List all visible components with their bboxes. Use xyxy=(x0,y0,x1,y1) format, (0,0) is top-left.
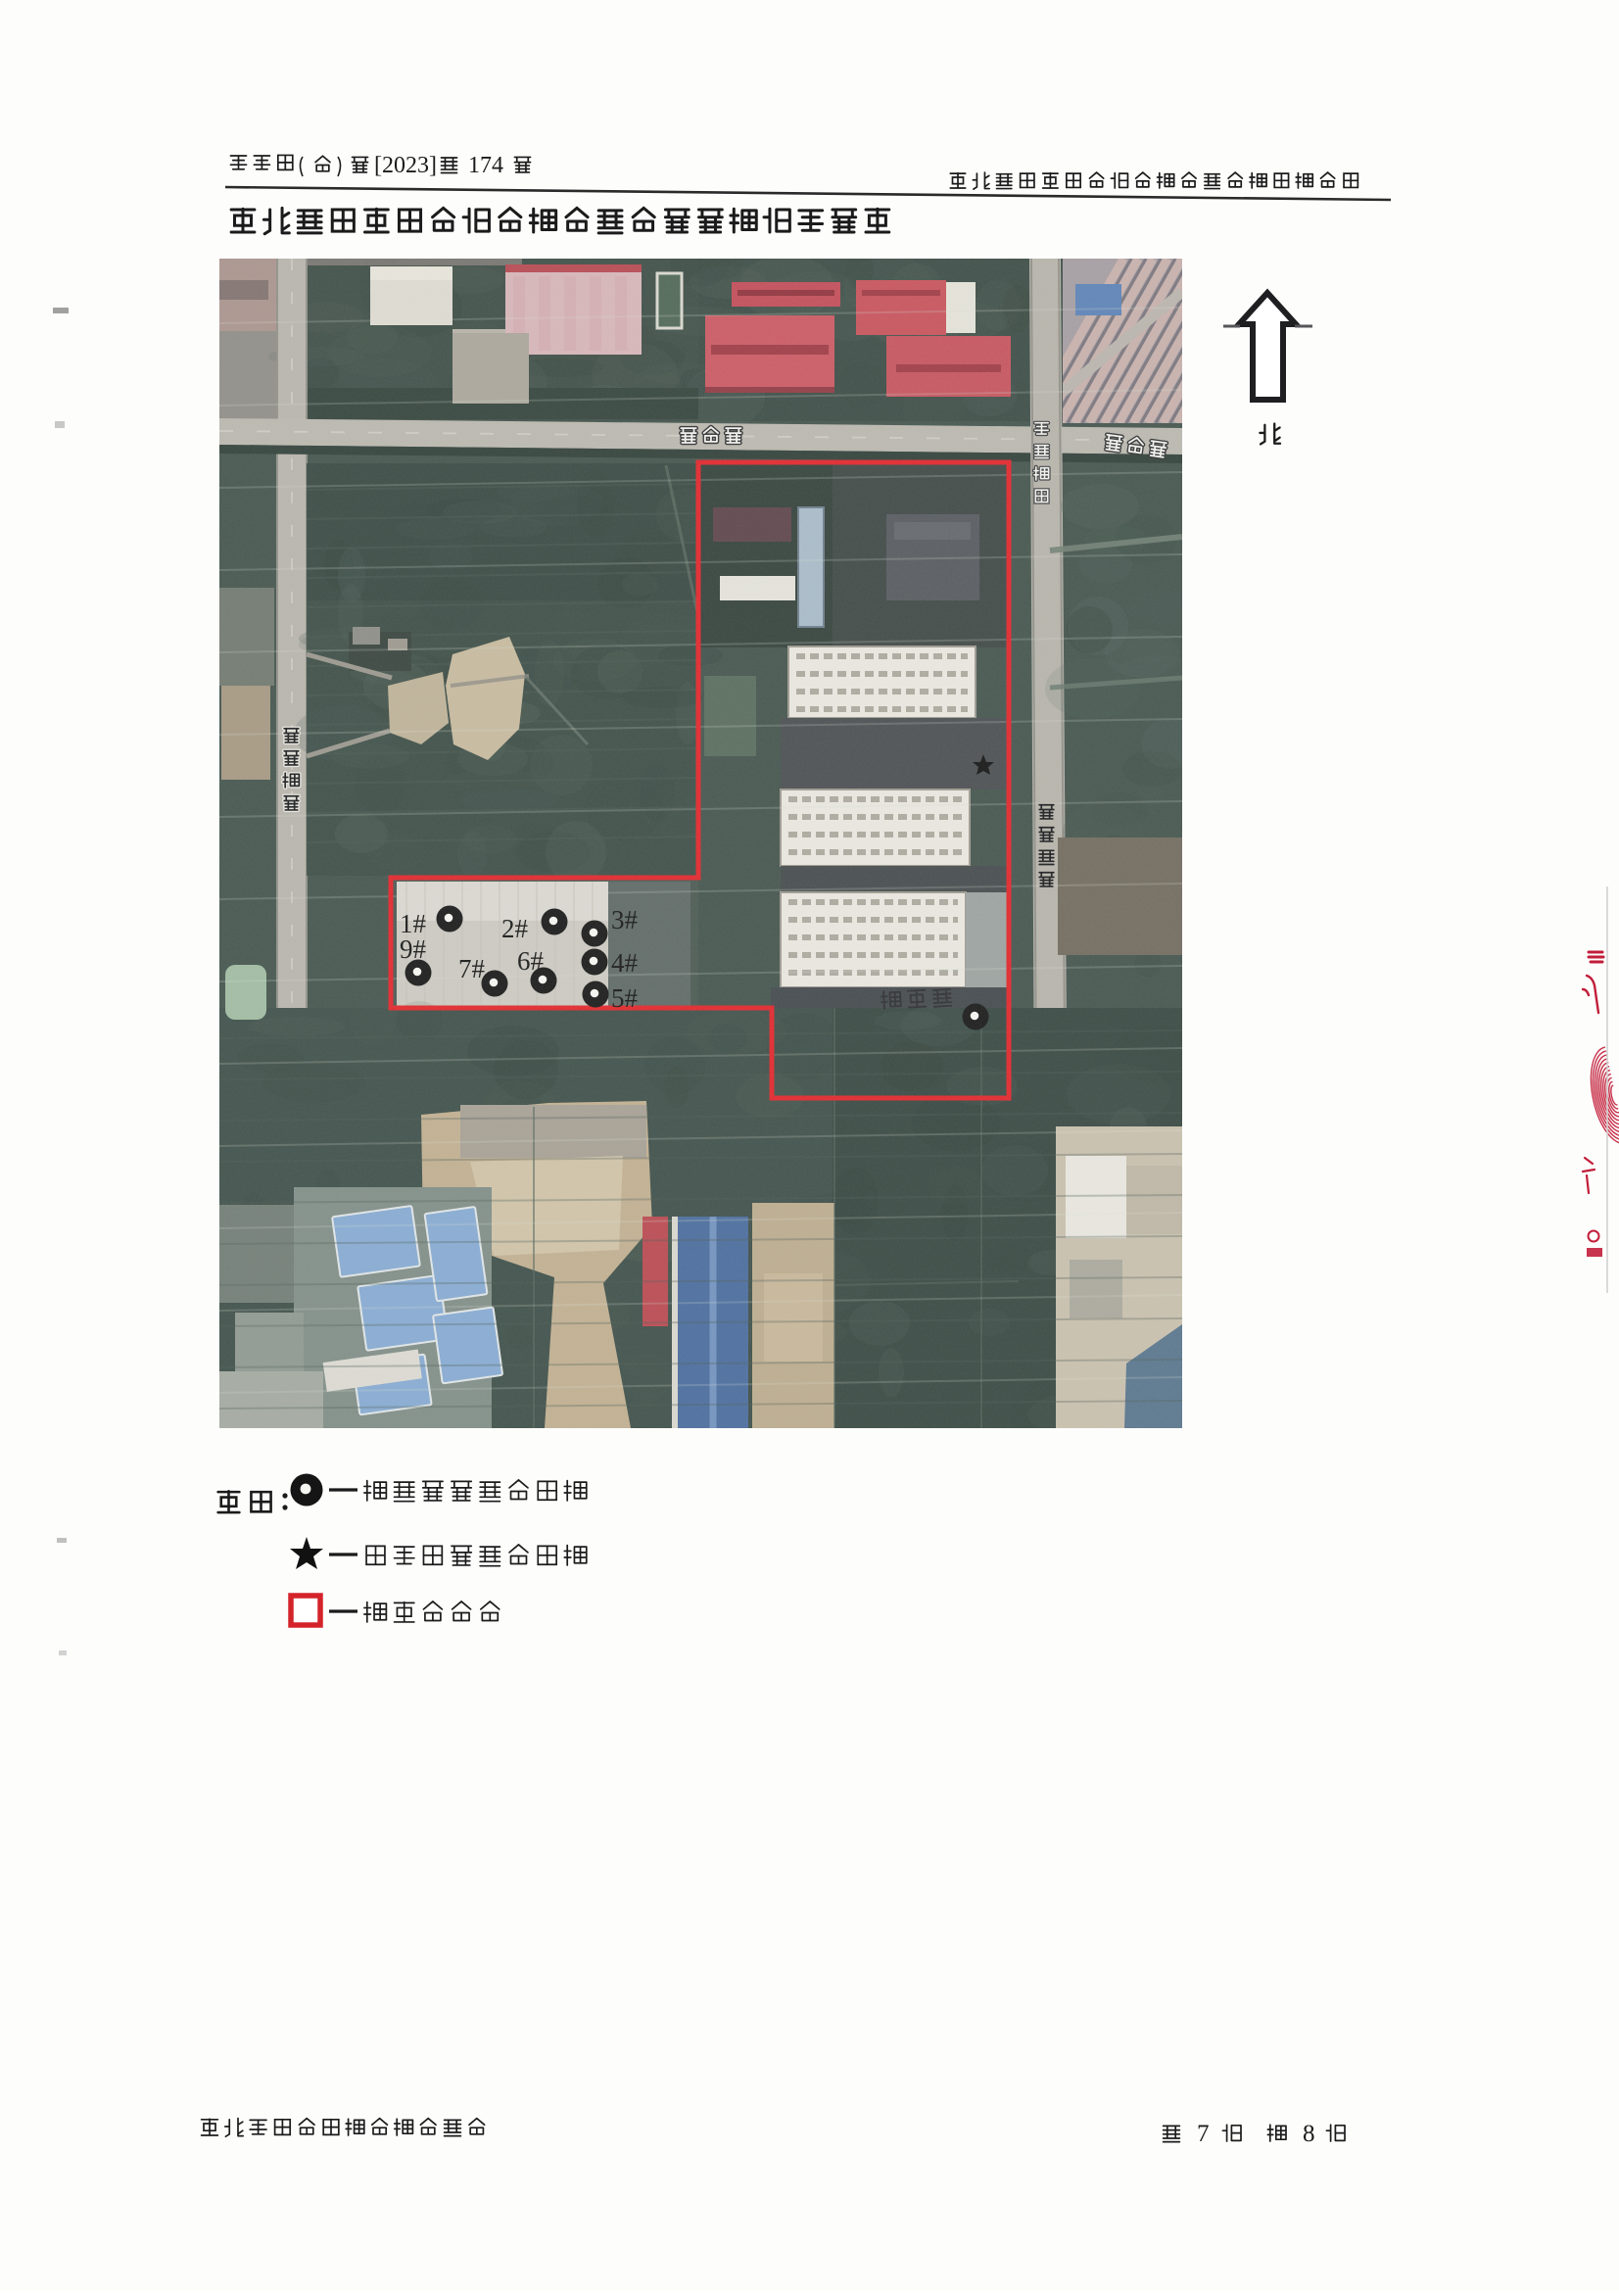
svg-text:174: 174 xyxy=(468,153,503,178)
svg-text:[2023]: [2023] xyxy=(374,153,437,178)
svg-text:8: 8 xyxy=(1303,2121,1315,2147)
svg-text:7: 7 xyxy=(1197,2121,1210,2147)
